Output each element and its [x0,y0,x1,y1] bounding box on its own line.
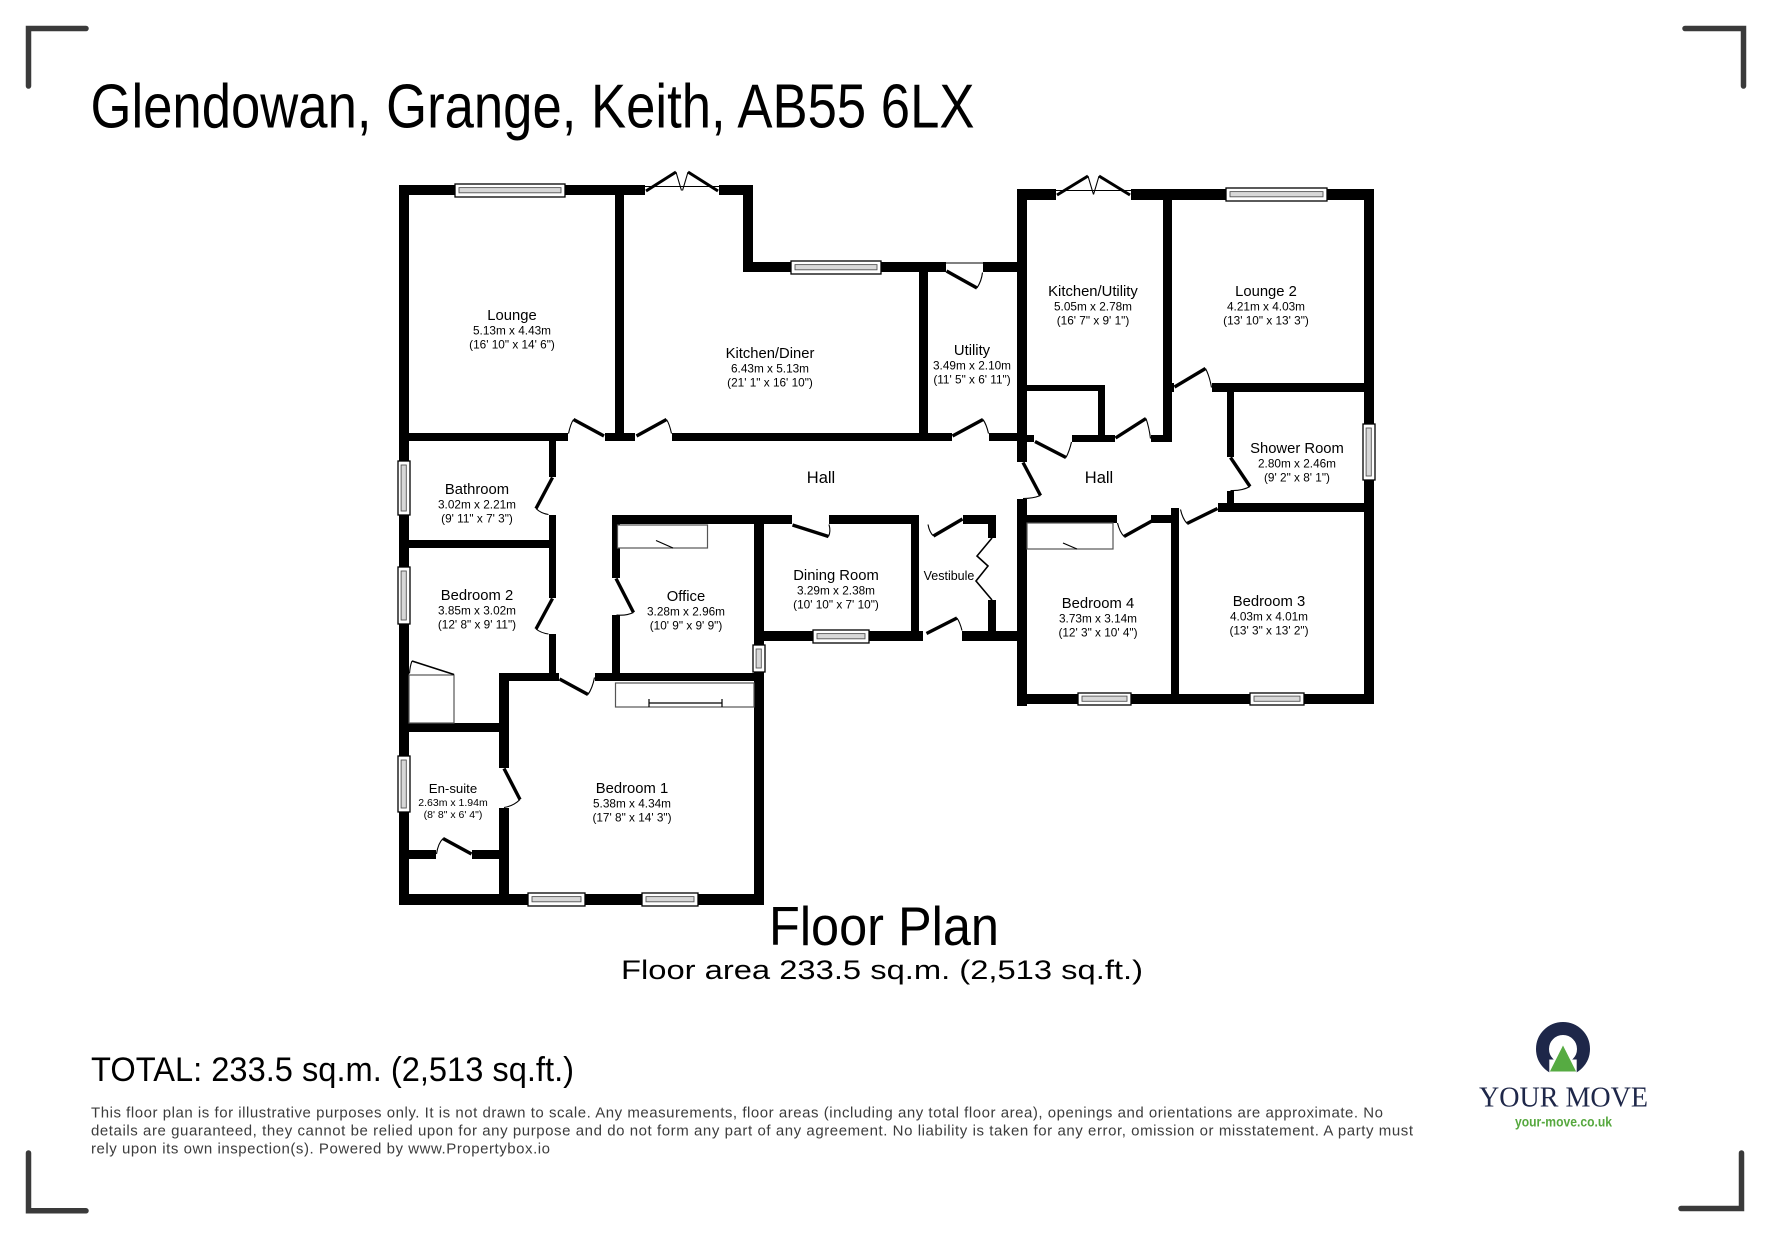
svg-text:Bedroom 4: Bedroom 4 [1062,596,1134,612]
svg-text:(13' 10" x 13' 3"): (13' 10" x 13' 3") [1223,314,1309,328]
svg-text:(9' 2" x 8' 1"): (9' 2" x 8' 1") [1264,471,1330,485]
svg-text:5.13m x 4.43m: 5.13m x 4.43m [473,324,551,338]
svg-text:Bathroom: Bathroom [445,482,509,498]
svg-text:4.21m x 4.03m: 4.21m x 4.03m [1227,300,1305,314]
svg-text:TOTAL: 233.5 sq.m. (2,513 sq.f: TOTAL: 233.5 sq.m. (2,513 sq.ft.) [91,1051,574,1089]
svg-text:(21' 1" x 16' 10"): (21' 1" x 16' 10") [727,376,813,390]
svg-text:3.28m x 2.96m: 3.28m x 2.96m [647,605,725,619]
svg-text:Bedroom 1: Bedroom 1 [596,781,668,797]
svg-text:3.73m x 3.14m: 3.73m x 3.14m [1059,612,1137,626]
svg-text:2.63m x 1.94m: 2.63m x 1.94m [418,797,488,809]
svg-text:3.29m x 2.38m: 3.29m x 2.38m [797,584,875,598]
svg-text:2.80m x 2.46m: 2.80m x 2.46m [1258,457,1336,471]
svg-text:Vestibule: Vestibule [924,569,975,583]
svg-text:(16' 7" x 9' 1"): (16' 7" x 9' 1") [1057,314,1130,328]
svg-text:En-suite: En-suite [429,781,477,796]
svg-text:5.38m x 4.34m: 5.38m x 4.34m [593,797,671,811]
svg-text:Floor Plan: Floor Plan [769,895,999,957]
svg-text:Kitchen/Utility: Kitchen/Utility [1048,284,1138,300]
svg-text:your-move.co.uk: your-move.co.uk [1515,1114,1612,1130]
svg-text:(9' 11" x 7' 3"): (9' 11" x 7' 3") [441,512,513,526]
svg-text:3.85m x 3.02m: 3.85m x 3.02m [438,604,516,618]
svg-text:3.49m x 2.10m: 3.49m x 2.10m [933,359,1011,373]
svg-text:4.03m x 4.01m: 4.03m x 4.01m [1230,610,1308,624]
svg-text:(11' 5" x 6' 11"): (11' 5" x 6' 11") [933,373,1010,387]
svg-text:Shower Room: Shower Room [1250,441,1344,457]
svg-text:Hall: Hall [807,469,835,487]
svg-text:(16' 10" x 14' 6"): (16' 10" x 14' 6") [469,338,555,352]
svg-text:Utility: Utility [954,343,991,359]
svg-text:Floor area 233.5 sq.m. (2,513: Floor area 233.5 sq.m. (2,513 sq.ft.) [621,955,1143,985]
svg-text:6.43m x 5.13m: 6.43m x 5.13m [731,362,809,376]
svg-text:Lounge: Lounge [487,308,536,324]
svg-text:5.05m x 2.78m: 5.05m x 2.78m [1054,300,1132,314]
svg-text:details are guaranteed, they c: details are guaranteed, they cannot be r… [91,1123,1414,1140]
svg-text:(8' 8" x 6' 4"): (8' 8" x 6' 4") [424,809,483,821]
svg-text:Kitchen/Diner: Kitchen/Diner [726,346,815,362]
svg-text:Dining Room: Dining Room [793,568,879,584]
svg-text:(10' 9" x 9' 9"): (10' 9" x 9' 9") [650,619,723,633]
svg-text:3.02m x 2.21m: 3.02m x 2.21m [438,498,516,512]
svg-text:Bedroom 2: Bedroom 2 [441,588,513,604]
svg-text:rely upon its own inspection(s: rely upon its own inspection(s). Powered… [91,1141,550,1158]
svg-text:Glendowan, Grange, Keith, AB55: Glendowan, Grange, Keith, AB55 6LX [91,72,975,142]
svg-text:(12' 3" x 10' 4"): (12' 3" x 10' 4") [1058,626,1137,640]
svg-text:(10' 10" x 7' 10"): (10' 10" x 7' 10") [793,598,879,612]
svg-text:Office: Office [667,589,705,605]
svg-text:(12' 8" x 9' 11"): (12' 8" x 9' 11") [438,618,516,632]
svg-text:(13' 3" x 13' 2"): (13' 3" x 13' 2") [1229,624,1308,638]
svg-text:Lounge 2: Lounge 2 [1235,284,1297,300]
svg-text:Bedroom 3: Bedroom 3 [1233,594,1305,610]
svg-text:YOUR MOVE: YOUR MOVE [1479,1082,1648,1114]
svg-text:Hall: Hall [1085,469,1113,487]
svg-text:This floor plan is for illustr: This floor plan is for illustrative purp… [91,1105,1383,1122]
svg-text:(17' 8" x 14' 3"): (17' 8" x 14' 3") [592,811,671,825]
